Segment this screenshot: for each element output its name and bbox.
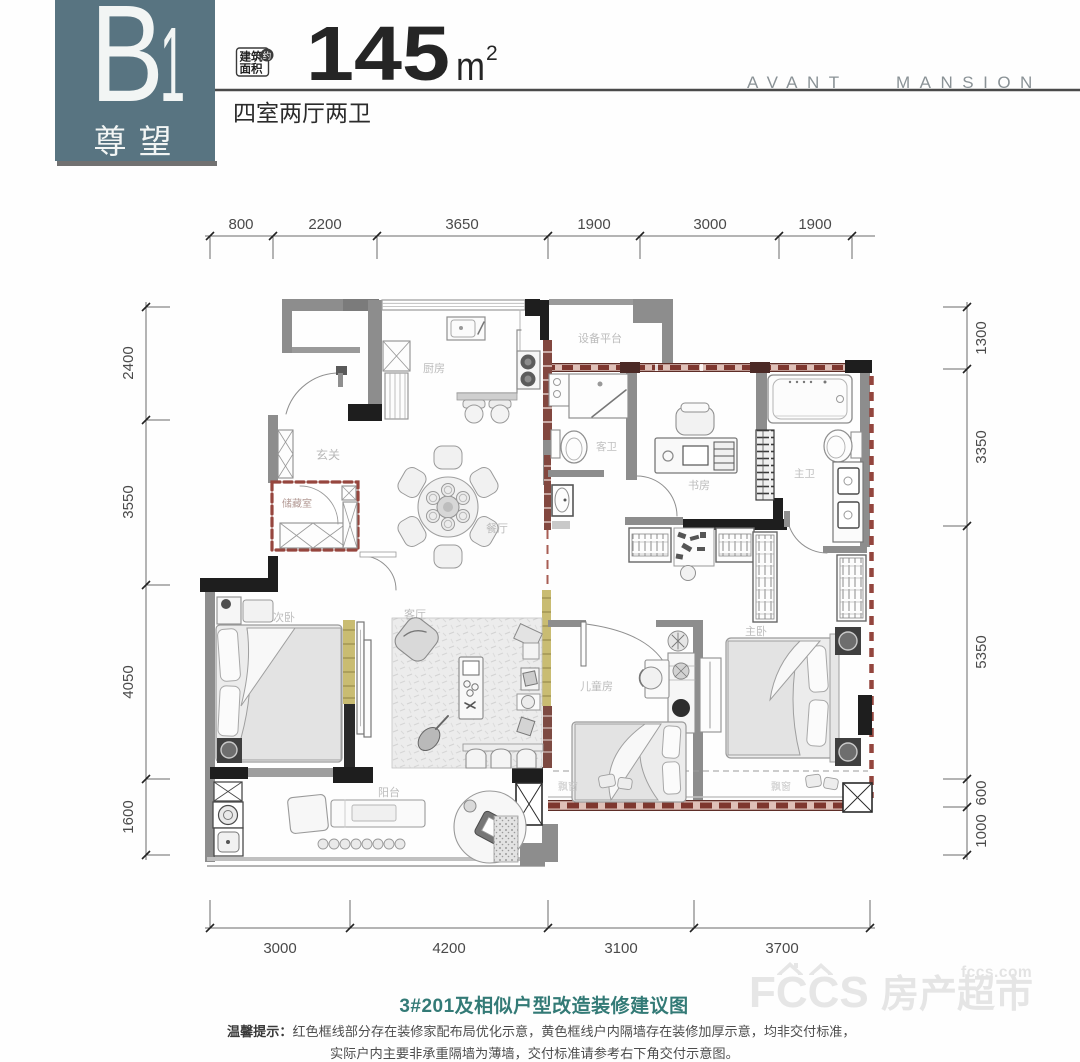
svg-text:书房: 书房 (688, 479, 710, 492)
svg-text:5350: 5350 (973, 635, 990, 668)
svg-text:建筑: 建筑 (240, 50, 263, 64)
svg-text:1: 1 (160, 6, 185, 124)
svg-text:温馨提示：红色框线部分存在装修家配布局优化示意，黄色框线户内: 温馨提示：红色框线部分存在装修家配布局优化示意，黄色框线户内隔墙存在装修加厚示意… (227, 1023, 856, 1039)
svg-text:餐厅: 餐厅 (486, 521, 508, 535)
svg-text:MANSION: MANSION (896, 73, 1042, 92)
svg-text:AVANT: AVANT (747, 73, 849, 92)
svg-text:3350: 3350 (973, 430, 990, 463)
svg-text:主卧: 主卧 (745, 625, 767, 638)
svg-text:玄关: 玄关 (316, 447, 340, 462)
svg-text:尊: 尊 (94, 123, 127, 160)
svg-text:储藏室: 储藏室 (282, 497, 312, 510)
svg-text:儿童房: 儿童房 (580, 679, 613, 693)
svg-text:房产超市: 房产超市 (881, 974, 1033, 1016)
svg-text:3700: 3700 (765, 940, 798, 957)
svg-text:3000: 3000 (263, 940, 296, 957)
svg-text:飘窗: 飘窗 (771, 780, 791, 793)
svg-text:飘窗: 飘窗 (558, 780, 578, 793)
svg-text:1900: 1900 (798, 216, 831, 233)
svg-text:主卫: 主卫 (794, 468, 815, 480)
svg-text:次卧: 次卧 (273, 610, 295, 624)
svg-text:2: 2 (486, 42, 498, 65)
svg-text:望: 望 (139, 123, 172, 160)
svg-text:厨房: 厨房 (423, 362, 445, 375)
svg-text:600: 600 (973, 780, 990, 805)
svg-text:1900: 1900 (577, 216, 610, 233)
svg-text:1600: 1600 (120, 800, 137, 833)
svg-text:1000: 1000 (973, 814, 990, 847)
svg-text:3000: 3000 (693, 216, 726, 233)
svg-text:四室两厅两卫: 四室两厅两卫 (233, 100, 371, 126)
svg-text:3650: 3650 (445, 216, 478, 233)
svg-text:3550: 3550 (120, 485, 137, 518)
svg-text:3100: 3100 (604, 940, 637, 957)
svg-text:面积: 面积 (240, 62, 263, 76)
svg-text:客卫: 客卫 (596, 440, 617, 453)
svg-text:B: B (90, 0, 164, 131)
svg-text:800: 800 (228, 216, 253, 233)
svg-text:实际户内主要非承重隔墙为薄墙，交付标准请参考右下角交付示意图: 实际户内主要非承重隔墙为薄墙，交付标准请参考右下角交付示意图。 (330, 1045, 739, 1061)
svg-text:约: 约 (263, 51, 272, 61)
svg-text:145: 145 (306, 11, 450, 97)
svg-text:1300: 1300 (973, 321, 990, 354)
svg-text:m: m (456, 45, 485, 89)
svg-text:阳台: 阳台 (378, 785, 400, 799)
svg-text:设备平台: 设备平台 (578, 331, 622, 345)
svg-text:4200: 4200 (432, 940, 465, 957)
svg-text:2200: 2200 (308, 216, 341, 233)
svg-text:3#201及相似户型改造装修建议图: 3#201及相似户型改造装修建议图 (399, 994, 688, 1017)
svg-text:FCCS: FCCS (749, 968, 869, 1017)
svg-text:2400: 2400 (120, 346, 137, 379)
svg-text:4050: 4050 (120, 665, 137, 698)
